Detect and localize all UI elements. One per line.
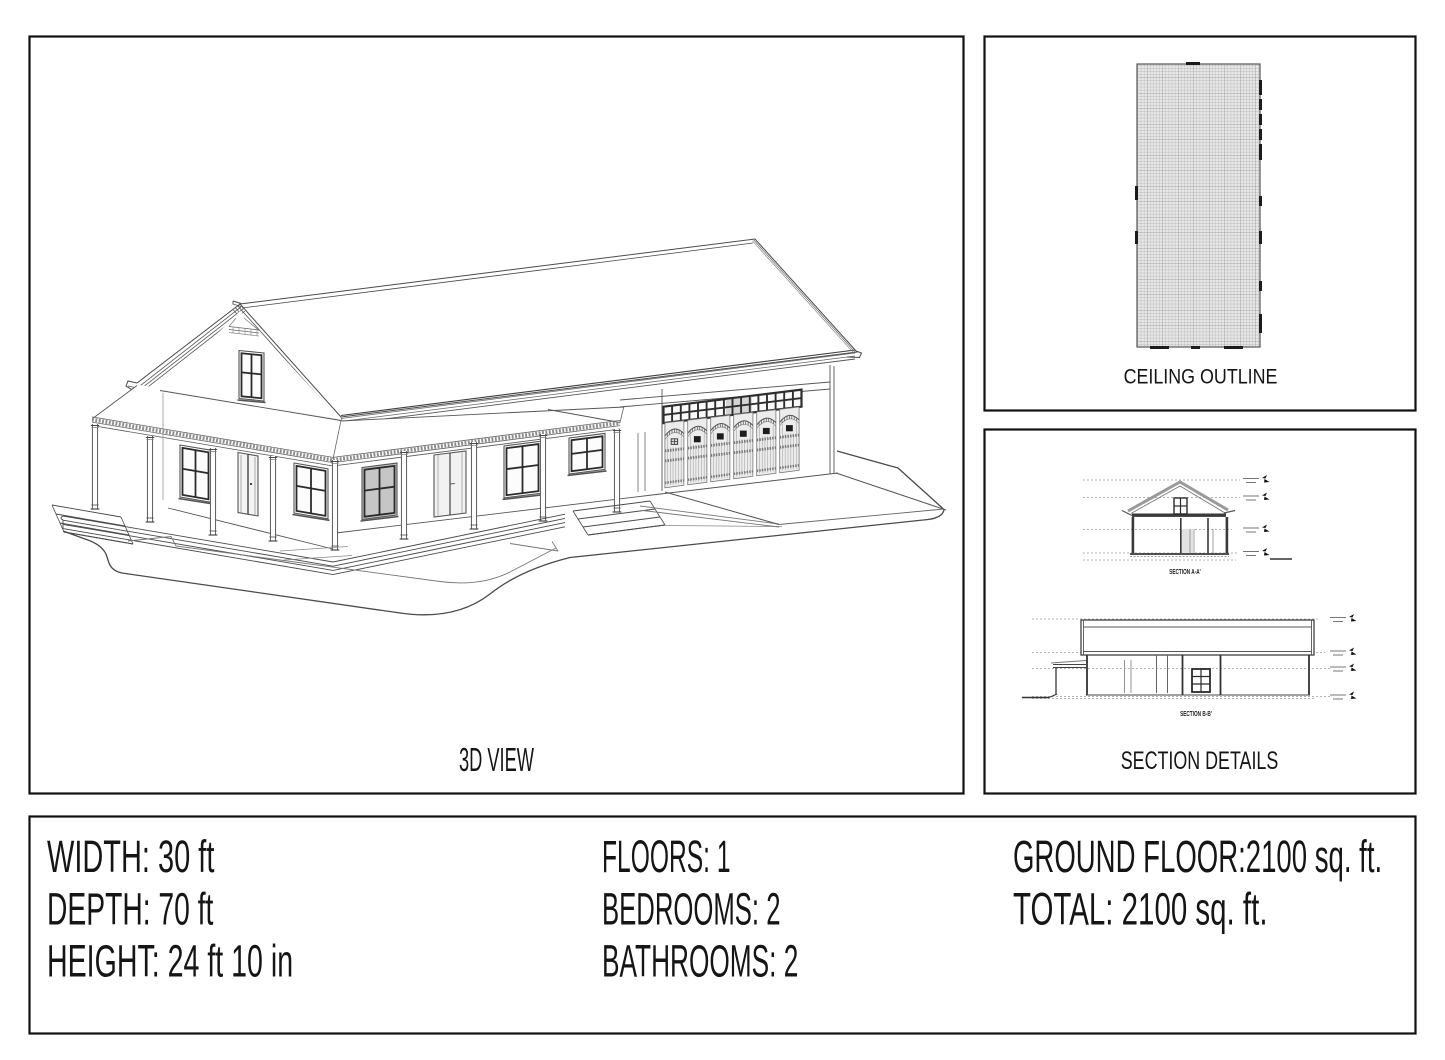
svg-text:SECTION A-A': SECTION A-A' <box>1169 568 1201 576</box>
svg-text:WIDTH: 30 ft: WIDTH: 30 ft <box>47 831 215 882</box>
svg-text:CEILING OUTLINE: CEILING OUTLINE <box>1124 365 1278 389</box>
svg-text:SECTION B-B': SECTION B-B' <box>1180 710 1212 718</box>
svg-text:FLOORS: 1: FLOORS: 1 <box>602 831 731 882</box>
svg-text:GROUND FLOOR:2100 sq. ft.: GROUND FLOOR:2100 sq. ft. <box>1013 831 1382 882</box>
svg-text:SECTION DETAILS: SECTION DETAILS <box>1121 746 1279 775</box>
svg-text:BATHROOMS: 2: BATHROOMS: 2 <box>602 935 798 986</box>
svg-text:TOTAL: 2100 sq. ft.: TOTAL: 2100 sq. ft. <box>1013 884 1267 935</box>
svg-text:BEDROOMS: 2: BEDROOMS: 2 <box>602 884 780 934</box>
svg-text:HEIGHT: 24 ft 10 in: HEIGHT: 24 ft 10 in <box>47 937 293 987</box>
svg-text:DEPTH: 70 ft: DEPTH: 70 ft <box>47 885 214 935</box>
svg-text:3D VIEW: 3D VIEW <box>459 741 535 778</box>
